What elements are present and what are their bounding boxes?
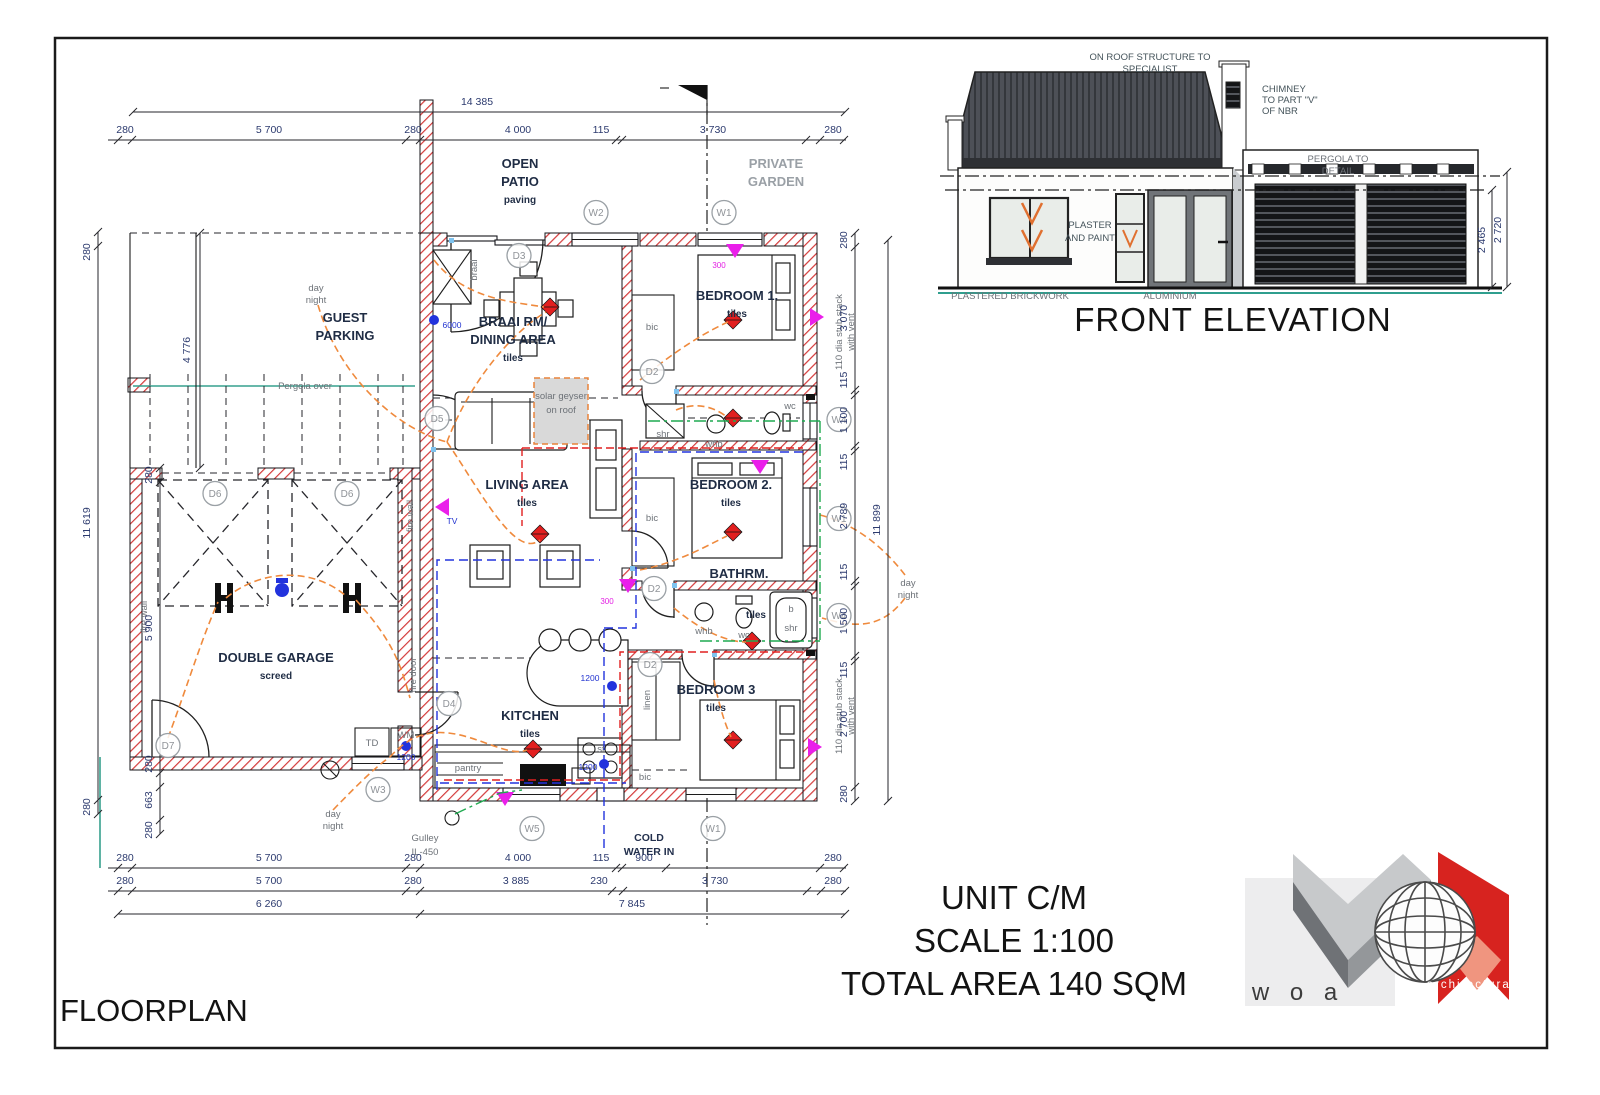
plan-tags-d6: D6: [341, 489, 354, 500]
plan-rooms-bed1: BEDROOM 1.: [696, 288, 778, 303]
plan-dims-bottom_row2-2: 280: [404, 875, 422, 887]
plan-dims-right_inner-5: 2 789: [838, 503, 850, 529]
plan-dims-right_overall: 11 899: [871, 504, 883, 535]
plan-labels-night: night: [323, 821, 344, 832]
plan-dims-bottom_row2-5: 3 730: [702, 875, 728, 887]
plan-labels-whb: whb: [694, 626, 712, 637]
drawing-sheet: GUESTPARKINGOPENPATIOpavingPRIVATEGARDEN…: [0, 0, 1600, 1095]
elevation-brickwork: PLASTERED BRICKWORK: [951, 291, 1069, 302]
plan-tags-d7: D7: [162, 741, 175, 752]
plan-labels-wc: wc: [783, 401, 796, 412]
plan-dims-bottom_row1-5: 900: [635, 852, 653, 864]
plan-dims-top-6: 280: [824, 124, 842, 136]
plan-labels-tiles: tiles: [721, 498, 741, 509]
plan-rooms-private_garden-0: PRIVATE: [749, 156, 804, 171]
plan-labels-solar-1: on roof: [546, 405, 576, 416]
elevation-plaster_note-1: AND PAINT: [1065, 233, 1115, 244]
plan-tags-d5: D5: [431, 414, 444, 425]
total-area-label: TOTAL AREA 140 SQM: [818, 962, 1210, 1005]
elevation-dims-1: 2 720: [1492, 217, 1504, 243]
scale-label: SCALE 1:100: [818, 919, 1210, 962]
plan-labels-solar-0: solar geyser: [535, 391, 587, 402]
plan-rooms-guest_parking-0: GUEST: [323, 310, 368, 325]
plan-labels-st: st: [597, 744, 605, 755]
plan-dims-top-2: 280: [404, 124, 422, 136]
plan-dims-bottom_row2-3: 3 885: [503, 875, 529, 887]
plan-dims-left_outer-1: 11 619: [81, 507, 93, 538]
plan-labels-linen: linen: [642, 690, 653, 710]
plan-labels-n1200: 1200: [397, 752, 416, 762]
plan-dims-bottom_row2-4: 230: [590, 875, 608, 887]
elevation-roof_note-0: ON ROOF STRUCTURE TO: [1089, 52, 1210, 63]
plan-labels-b: b: [788, 604, 793, 615]
plan-labels-td: TD: [366, 738, 379, 749]
plan-labels-wc: wc: [737, 630, 750, 641]
plan-labels-tiles: tiles: [727, 309, 747, 320]
unit-title: UNIT C/M: [818, 876, 1210, 919]
plan-labels-n300: 300: [600, 597, 614, 606]
plan-dims-right_inner-8: 115: [838, 661, 850, 678]
plan-labels-pantry: pantry: [455, 763, 482, 774]
elevation-dims-0: 2 465: [1476, 227, 1488, 253]
elevation-plaster_note-0: PLASTER: [1068, 220, 1111, 231]
plan-labels-day: day: [308, 283, 324, 294]
title-block: UNIT C/M SCALE 1:100 TOTAL AREA 140 SQM: [818, 876, 1210, 1005]
plan-labels-day: day: [900, 578, 916, 589]
plan-tags-w3: W3: [371, 785, 386, 796]
elevation-roof_note-1: SPECIALIST: [1123, 64, 1178, 75]
plan-dims-right_inner-0: 280: [838, 231, 850, 249]
elevation-chimney_note-0: CHIMNEY: [1262, 84, 1306, 95]
plan-labels-bic: bic: [646, 322, 658, 333]
plan-dims-left_inner-4: 280: [143, 821, 155, 839]
plan-rooms-living: LIVING AREA: [485, 477, 569, 492]
plan-dims-top-4: 115: [593, 124, 610, 136]
plan-labels-bic: bic: [646, 513, 658, 524]
plan-tags-d4: D4: [443, 699, 456, 710]
plan-labels-day: day: [325, 809, 341, 820]
plan-tags-w1: W1: [706, 824, 721, 835]
plan-labels-tiles: tiles: [520, 729, 540, 740]
front-elevation-title: FRONT ELEVATION: [1058, 301, 1408, 339]
plan-labels-n300: 300: [712, 261, 726, 270]
plan-dims-top-0: 280: [116, 124, 134, 136]
plan-labels-shr: shr: [656, 429, 669, 440]
front-elevation-drawing: [938, 61, 1502, 293]
plan-dims-right_inner-7: 1 500: [838, 608, 850, 634]
plan-dims-right_inner-4: 115: [838, 453, 850, 470]
plan-dims-bottom_row1-2: 280: [404, 852, 422, 864]
plan-dims-top-5: 3 730: [700, 124, 726, 136]
plan-labels-fire_wall: fire wall: [405, 500, 416, 532]
plan-dims-bottom_row3-1: 7 845: [619, 898, 645, 910]
plan-labels-pergola: Pergola over: [278, 381, 332, 392]
plan-rooms-open_patio-1: PATIO: [501, 174, 539, 189]
plan-dims-right_inner-2: 115: [838, 371, 850, 388]
elevation-pergola_note-1: DETAIL: [1322, 166, 1355, 177]
logo-tagline-2: practice: [1451, 993, 1507, 1005]
plan-dims-top-3: 4 000: [505, 124, 531, 136]
plan-tags-w5: W5: [525, 824, 540, 835]
pergola: [130, 233, 420, 468]
plan-labels-bic: bic: [639, 772, 651, 783]
plan-dims-left_inner-0: 280: [143, 466, 155, 484]
plan-rooms-double_garage: DOUBLE GARAGE: [218, 650, 334, 665]
plan-rooms-braai_dining-0: BRAAI RM/: [479, 314, 548, 329]
plan-tags-d3: D3: [513, 251, 526, 262]
plan-rooms-kitchen: KITCHEN: [501, 708, 559, 723]
plan-labels-screed: screed: [260, 671, 292, 682]
plan-dims-top_overall: 14 385: [461, 96, 493, 108]
logo-brand: w o a: [1251, 979, 1344, 1006]
plan-labels-wm: WM: [398, 730, 415, 741]
plan-dims-bottom_row3-0: 6 260: [256, 898, 282, 910]
plan-labels-fire_door: fire door: [408, 658, 419, 693]
plan-dims-right_inner-6: 115: [838, 563, 850, 580]
plan-dims-bottom_row1-1: 5 700: [256, 852, 282, 864]
elevation-chimney_note-2: OF NBR: [1262, 106, 1298, 117]
plan-tags-d2: D2: [648, 584, 661, 595]
elevation-pergola_note-0: PERGOLA TO: [1308, 154, 1369, 165]
plan-dims-left_outer-0: 280: [81, 243, 93, 261]
plan-labels-tiles: tiles: [503, 353, 523, 364]
plan-labels-n1200: 1200: [581, 673, 600, 683]
plan-dims-left_inner-2: 280: [143, 755, 155, 773]
plan-dims-right_inner-1: 3 070: [838, 305, 850, 331]
woa-logo: w o a architectural practice: [1243, 840, 1523, 1012]
plan-rooms-bed2: BEDROOM 2.: [690, 477, 772, 492]
plan-rooms-bathrm: BATHRM.: [710, 566, 769, 581]
plan-labels-shr: shr: [784, 623, 797, 634]
plan-rooms-open_patio-0: OPEN: [502, 156, 539, 171]
plan-dims-parking_depth: 4 776: [181, 337, 193, 363]
plan-labels-gulley-0: Gulley: [412, 833, 439, 844]
plan-rooms-bed3: BEDROOM 3: [677, 682, 756, 697]
plan-tags-w2: W2: [589, 208, 604, 219]
globe-icon: [1375, 882, 1475, 982]
plan-labels-tiles: tiles: [746, 610, 766, 621]
plan-dims-right_inner-3: 1 100: [838, 407, 850, 433]
plan-tags-d2: D2: [644, 660, 657, 671]
plan-labels-night: night: [306, 295, 327, 306]
plan-tags-w1: W1: [717, 208, 732, 219]
plan-labels-n6000: 6000: [443, 320, 462, 330]
plan-labels-tv: TV: [447, 516, 458, 526]
plan-dims-left_inner-3: 663: [143, 791, 155, 809]
plan-dims-bottom_row1-3: 4 000: [505, 852, 531, 864]
plan-labels-tiles: tiles: [517, 498, 537, 509]
plan-dims-bottom_row1-4: 115: [593, 852, 610, 864]
plan-labels-n1200: 1200: [579, 762, 598, 772]
elevation-chimney_note-1: TO PART "V": [1262, 95, 1318, 106]
plan-dims-left_outer-2: 280: [81, 798, 93, 816]
plan-rooms-private_garden-1: GARDEN: [748, 174, 804, 189]
plan-dims-bottom_row2-0: 280: [116, 875, 134, 887]
plan-rooms-guest_parking-1: PARKING: [316, 328, 375, 343]
plan-dims-bottom_row2-1: 5 700: [256, 875, 282, 887]
plan-labels-night: night: [898, 590, 919, 601]
plan-dims-right_inner-9: 2 700: [838, 711, 850, 737]
plan-dims-top-1: 5 700: [256, 124, 282, 136]
plan-dims-right_inner-10: 280: [838, 785, 850, 803]
plan-labels-braai: braai: [469, 259, 480, 280]
plan-tags-d2: D2: [646, 367, 659, 378]
plan-tags-d6: D6: [209, 489, 222, 500]
floorplan-title: FLOORPLAN: [60, 993, 248, 1029]
plan-rooms-braai_dining-1: DINING AREA: [470, 332, 556, 347]
plan-labels-tiles: tiles: [706, 703, 726, 714]
plan-dims-left_inner-1: 5 900: [143, 615, 155, 641]
plan-labels-whb: whb: [704, 439, 722, 450]
plan-dims-bottom_row1-0: 280: [116, 852, 134, 864]
plan-labels-cold_water-0: COLD: [634, 832, 664, 844]
logo-tagline-1: architectural: [1427, 979, 1516, 991]
plan-dims-bottom_row1-6: 280: [824, 852, 842, 864]
plan-labels-paving: paving: [504, 195, 536, 206]
